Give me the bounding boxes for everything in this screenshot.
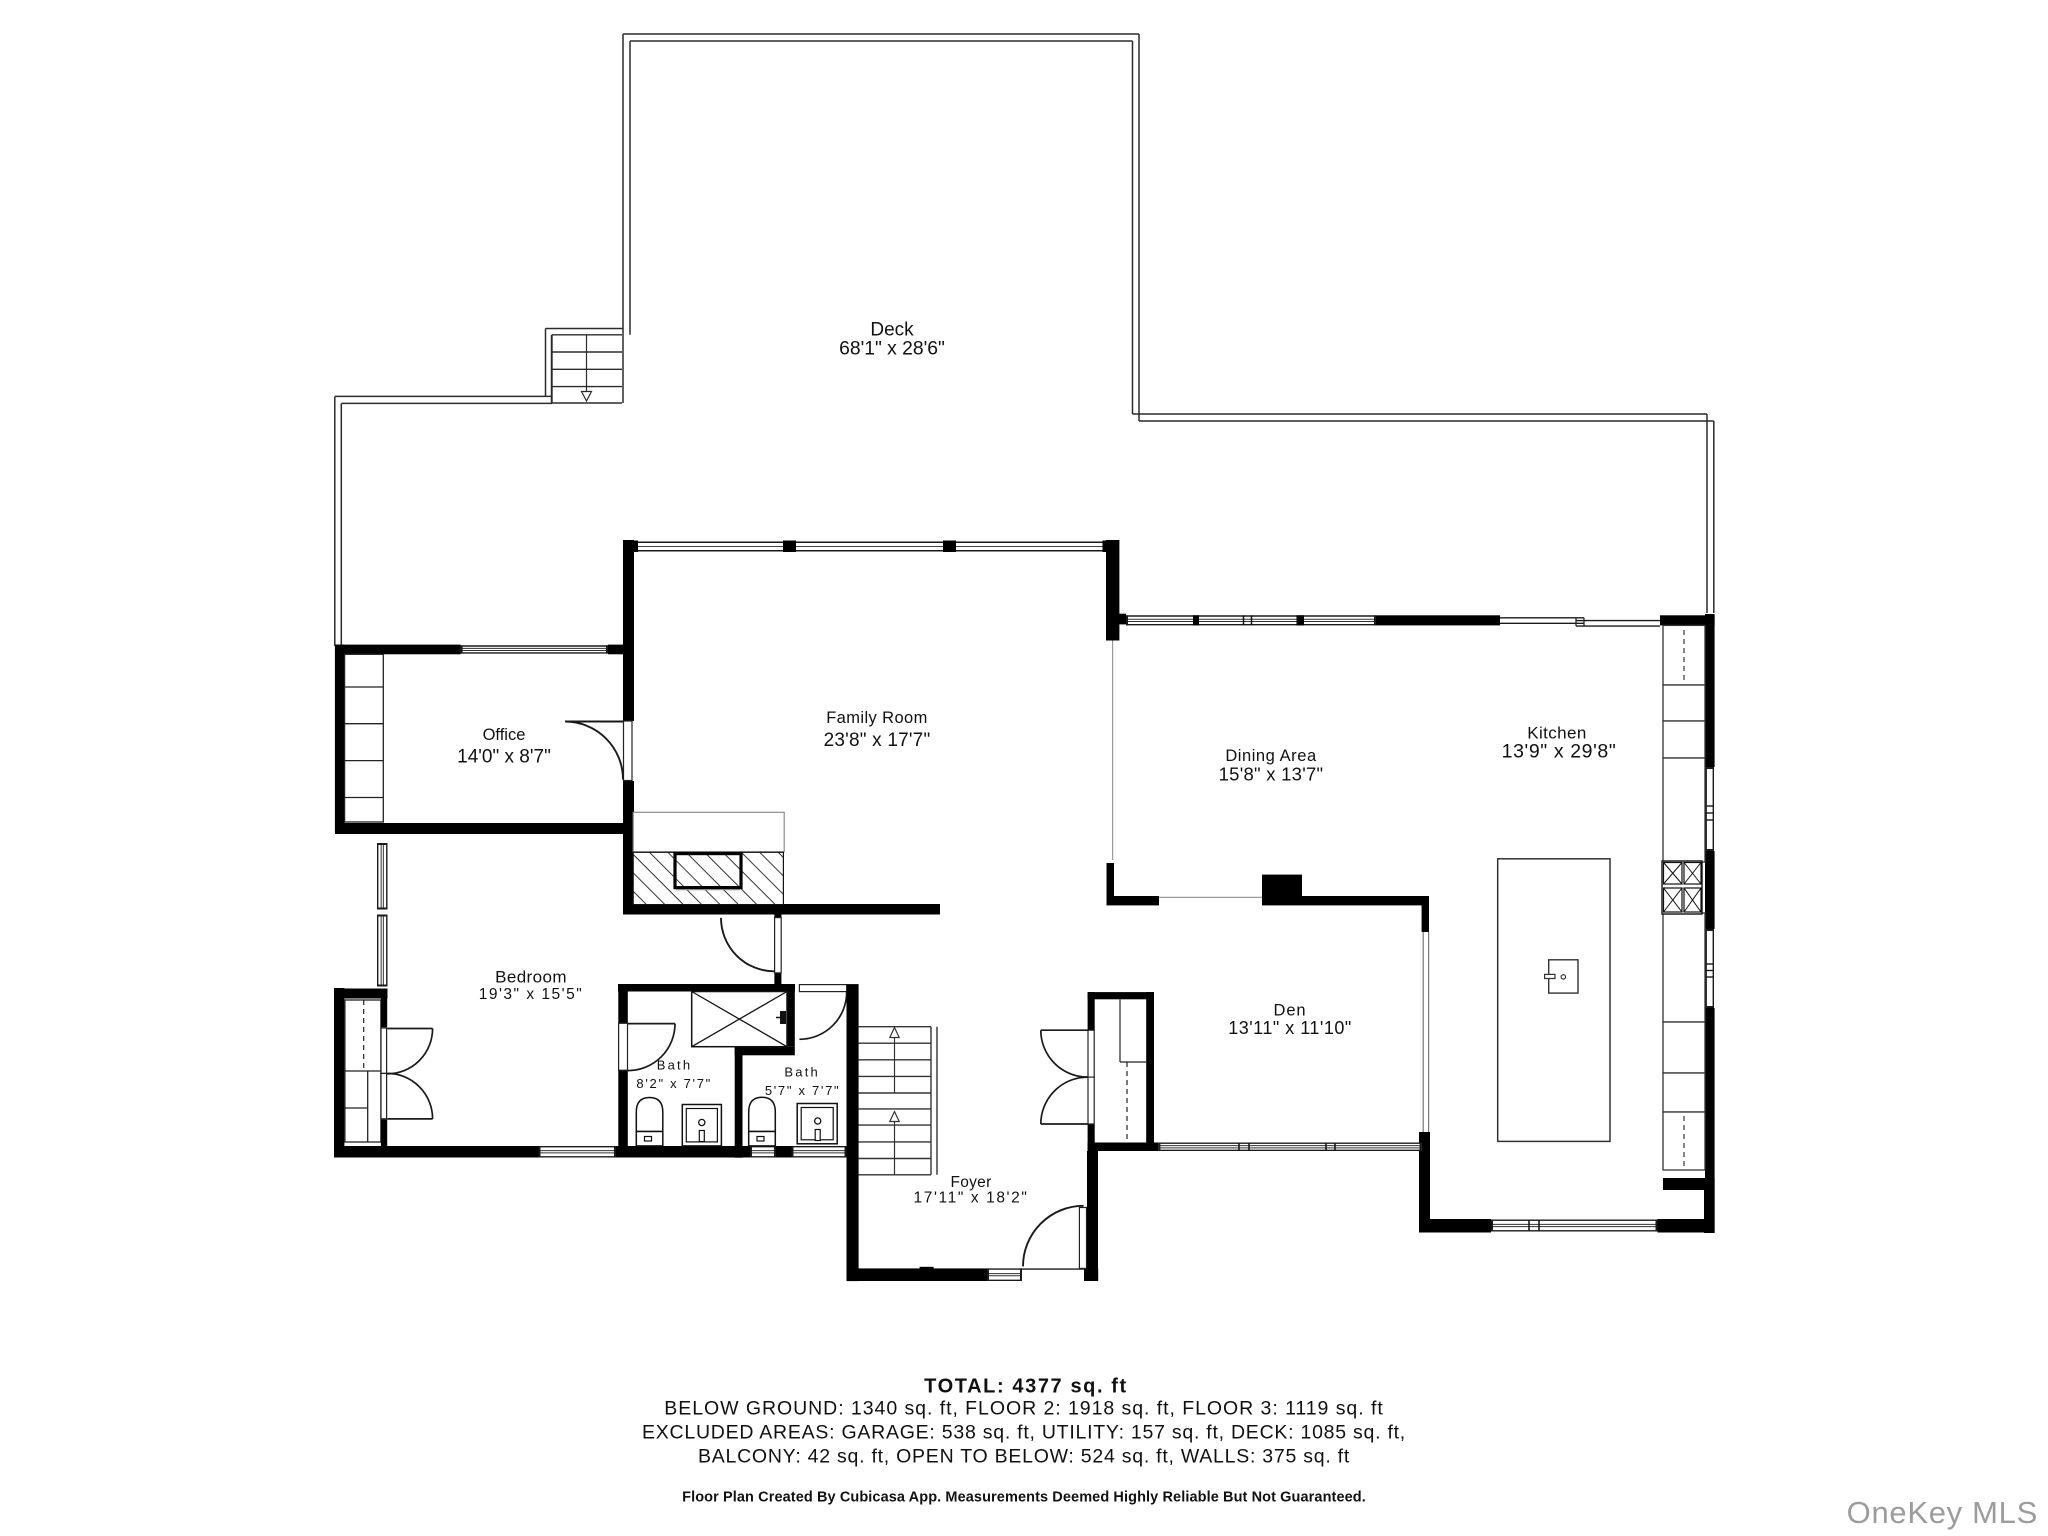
- svg-text:BALCONY: 42 sq. ft, OPEN TO BE: BALCONY: 42 sq. ft, OPEN TO BELOW: 524 s…: [698, 1446, 1350, 1468]
- svg-text:Dining Area: Dining Area: [1225, 747, 1317, 765]
- svg-text:EXCLUDED AREAS: GARAGE: 538 sq: EXCLUDED AREAS: GARAGE: 538 sq. ft, UTIL…: [642, 1422, 1406, 1444]
- svg-text:17'11" x 18'2": 17'11" x 18'2": [914, 1190, 1029, 1207]
- svg-text:OneKey MLS: OneKey MLS: [1847, 1495, 2038, 1530]
- svg-text:13'9" x 29'8": 13'9" x 29'8": [1502, 740, 1617, 762]
- svg-text:Bath: Bath: [784, 1064, 820, 1079]
- svg-text:Office: Office: [483, 726, 526, 744]
- svg-text:Bath: Bath: [657, 1057, 693, 1072]
- svg-text:TOTAL: 4377 sq. ft: TOTAL: 4377 sq. ft: [924, 1376, 1128, 1398]
- svg-text:Foyer: Foyer: [950, 1174, 991, 1191]
- svg-text:13'11" x 11'10": 13'11" x 11'10": [1228, 1018, 1352, 1038]
- svg-text:68'1" x 28'6": 68'1" x 28'6": [839, 338, 945, 359]
- svg-text:15'8" x 13'7": 15'8" x 13'7": [1219, 764, 1324, 785]
- svg-text:Bedroom: Bedroom: [495, 968, 567, 987]
- svg-text:5'7" x 7'7": 5'7" x 7'7": [765, 1083, 841, 1098]
- svg-text:19'3" x 15'5": 19'3" x 15'5": [479, 986, 584, 1003]
- svg-text:Family Room: Family Room: [826, 709, 928, 727]
- svg-text:8'2" x 7'7": 8'2" x 7'7": [636, 1076, 712, 1091]
- svg-text:Den: Den: [1274, 1002, 1307, 1020]
- svg-text:14'0" x 8'7": 14'0" x 8'7": [457, 746, 551, 767]
- svg-text:BELOW GROUND: 1340 sq. ft, FLO: BELOW GROUND: 1340 sq. ft, FLOOR 2: 1918…: [664, 1398, 1383, 1420]
- svg-text:Floor Plan Created By Cubicasa: Floor Plan Created By Cubicasa App. Meas…: [682, 1490, 1366, 1506]
- svg-text:23'8" x 17'7": 23'8" x 17'7": [824, 730, 931, 751]
